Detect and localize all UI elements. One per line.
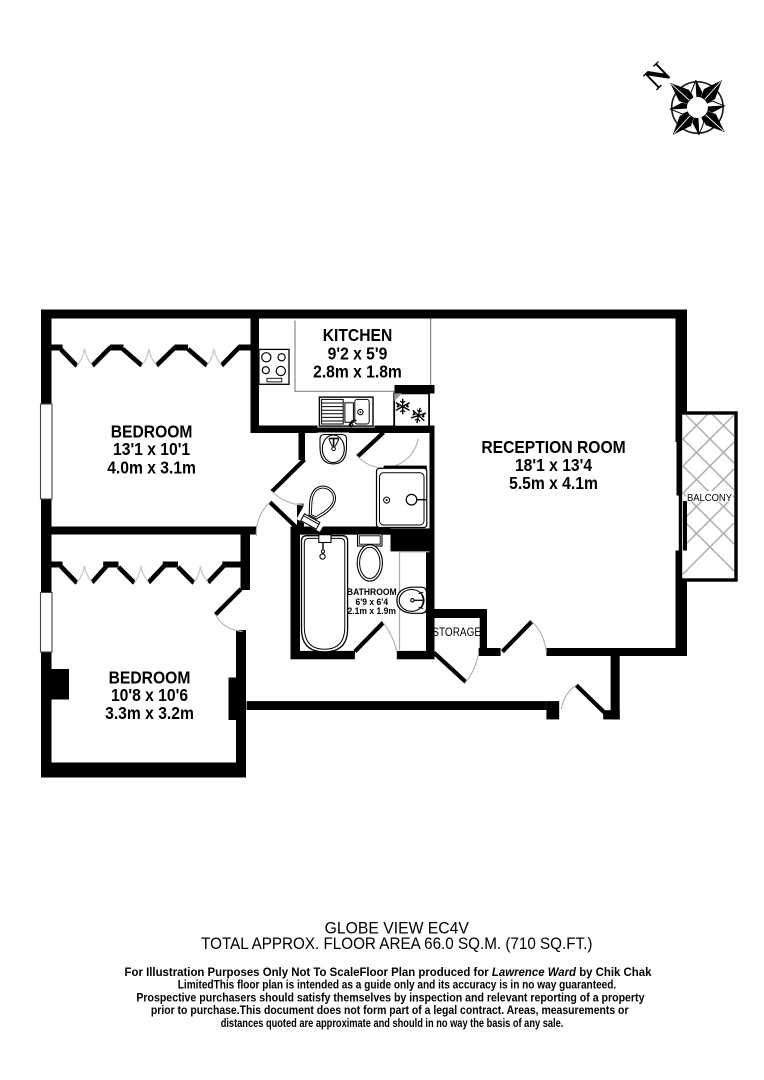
svg-text:LimitedThis floor plan is inte: LimitedThis floor plan is intended as a … <box>178 979 617 992</box>
svg-text:2.8m x 1.8m: 2.8m x 1.8m <box>313 362 402 382</box>
svg-text:BALCONY: BALCONY <box>687 493 732 505</box>
svg-text:distances quoted are approxima: distances quoted are approximate and sho… <box>221 1017 564 1031</box>
svg-text:5.5m x 4.1m: 5.5m x 4.1m <box>509 473 598 493</box>
svg-text:For Illustration Purposes Only: For Illustration Purposes Only Not To Sc… <box>125 965 652 980</box>
svg-text:3.3m x 3.2m: 3.3m x 3.2m <box>105 703 194 723</box>
svg-text:4.0m x 3.1m: 4.0m x 3.1m <box>107 458 196 478</box>
svg-text:9'2 x 5'9: 9'2 x 5'9 <box>328 343 388 363</box>
svg-text:prior to purchase.This documen: prior to purchase.This document does not… <box>151 1004 629 1017</box>
svg-text:Prospective purchasers should: Prospective purchasers should satisfy th… <box>136 992 645 1005</box>
svg-text:TOTAL APPROX. FLOOR AREA 66.0: TOTAL APPROX. FLOOR AREA 66.0 SQ.M. (710… <box>201 935 592 953</box>
svg-text:2.1m x 1.9m: 2.1m x 1.9m <box>348 606 397 616</box>
svg-text:13'1 x 10'1: 13'1 x 10'1 <box>113 439 190 459</box>
svg-text:STORAGE: STORAGE <box>432 626 481 639</box>
